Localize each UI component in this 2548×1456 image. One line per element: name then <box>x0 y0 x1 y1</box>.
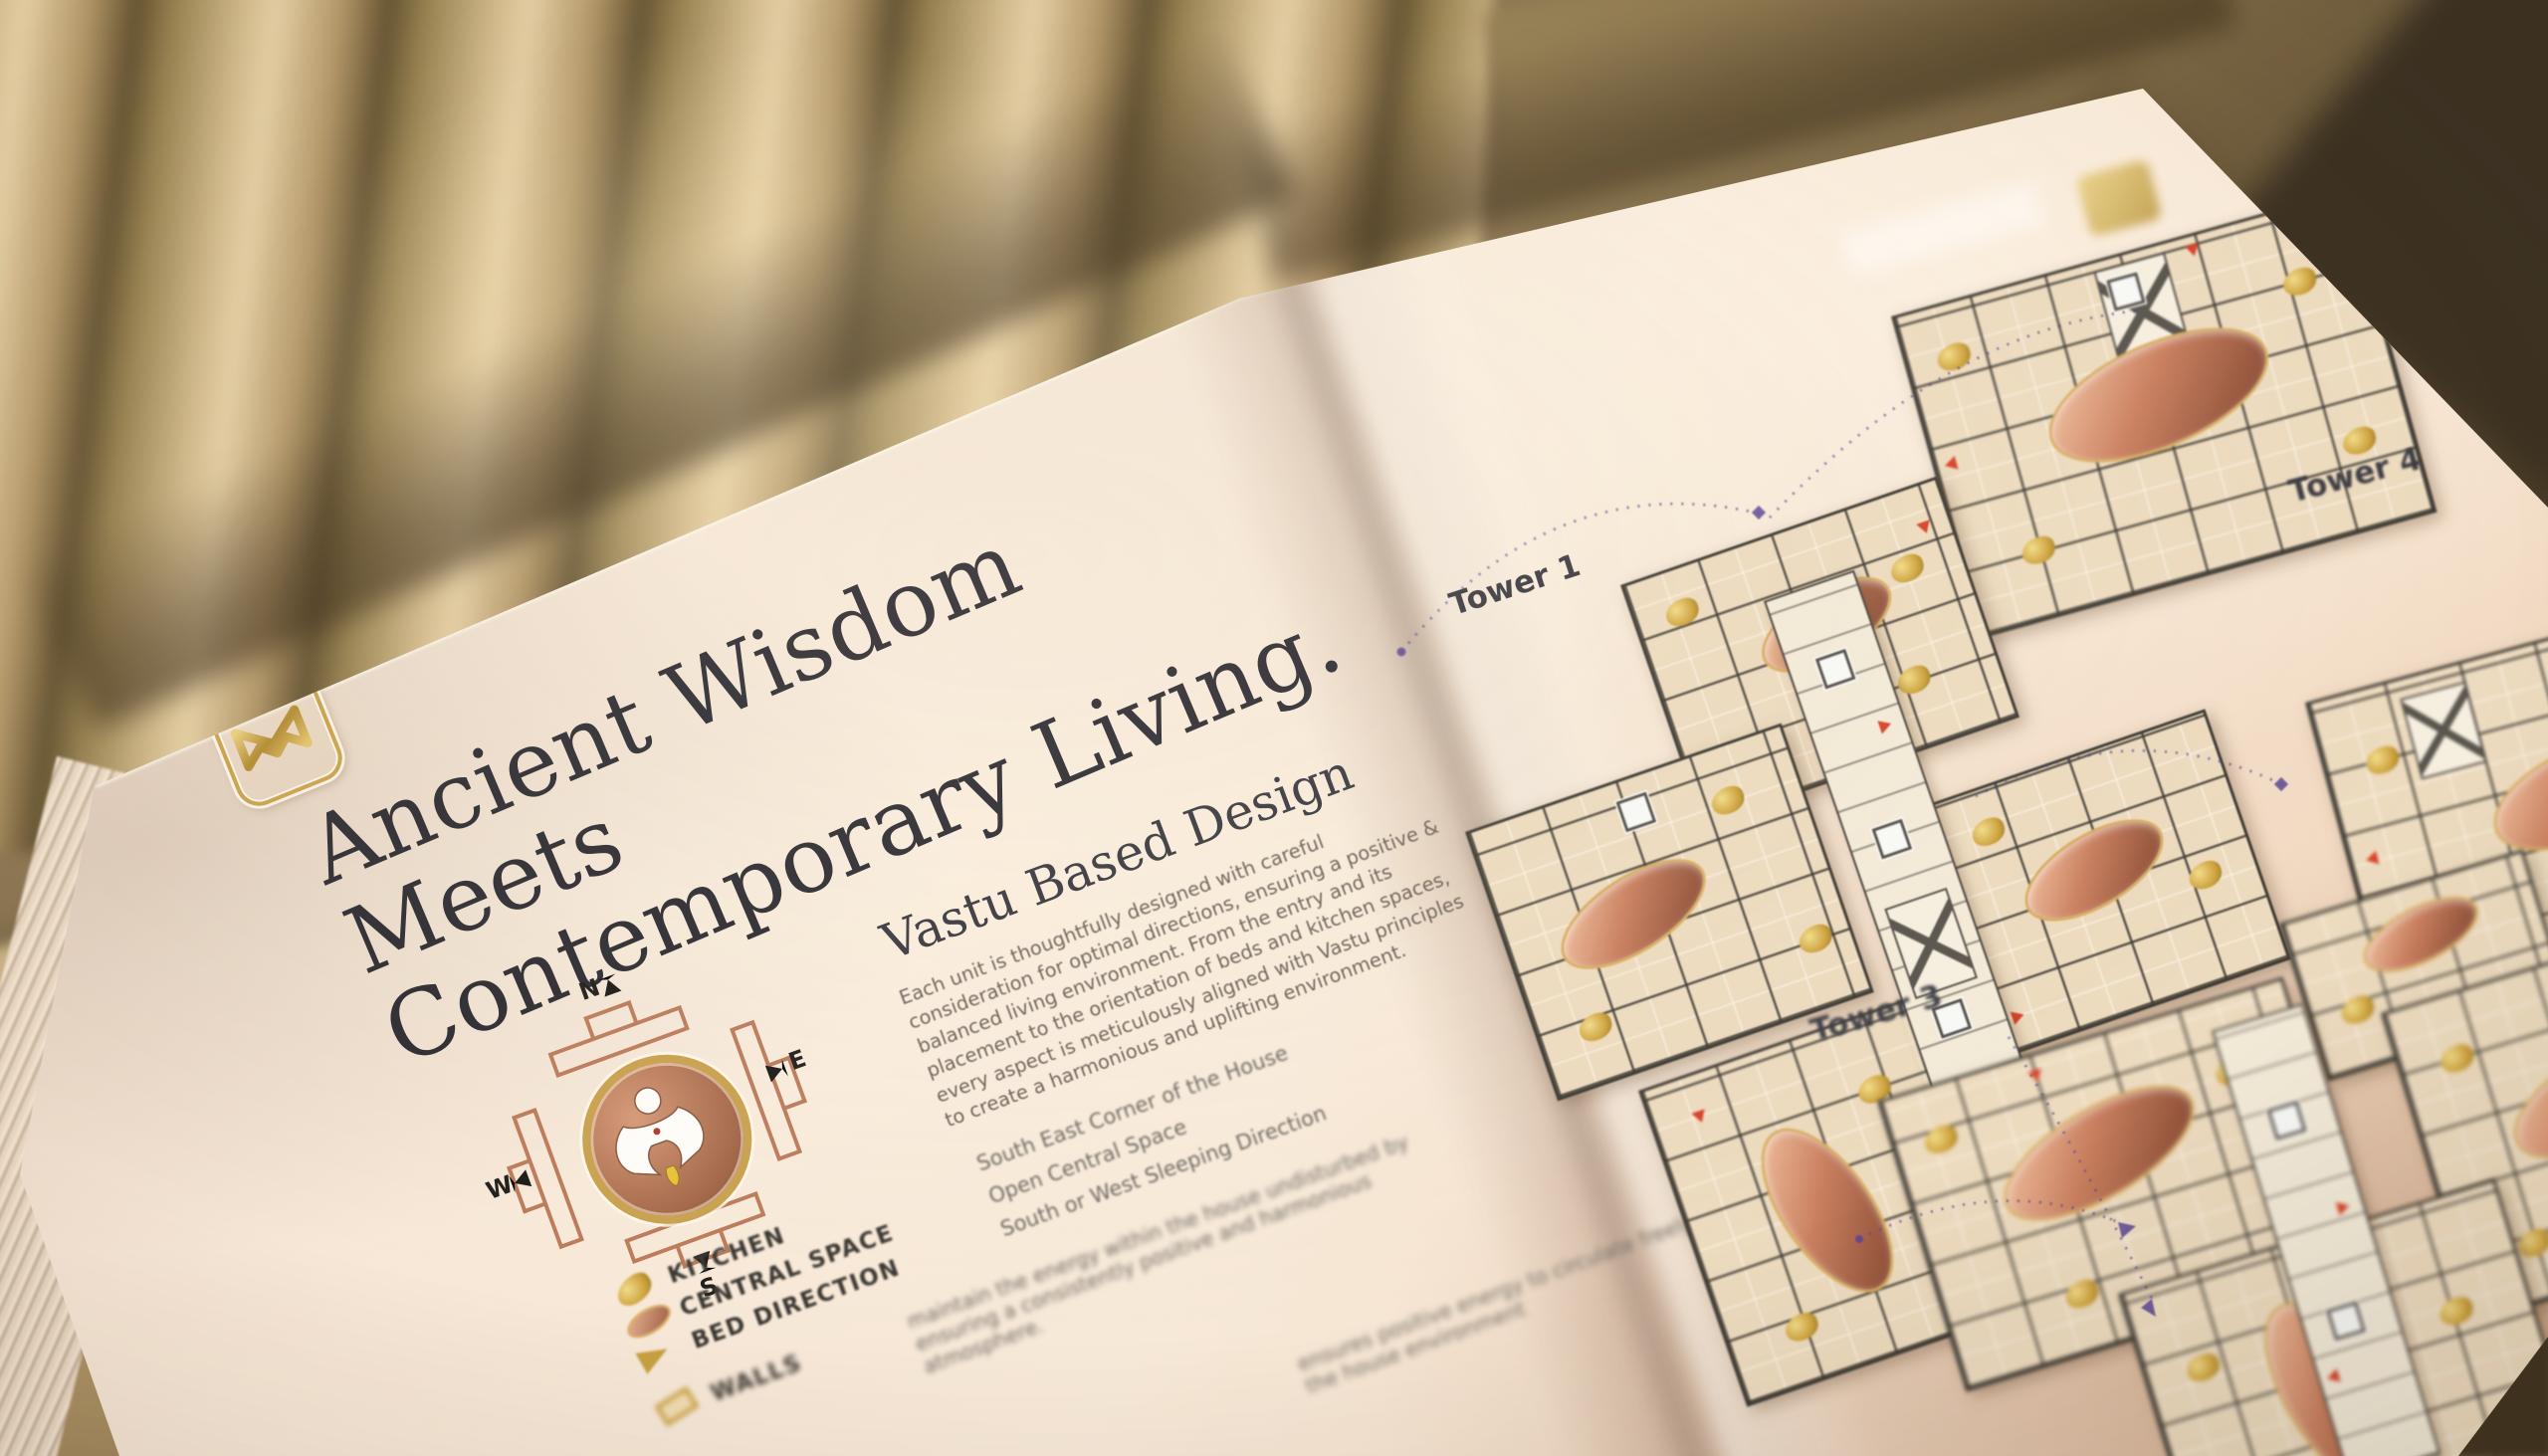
photo-scene: Ancient Wisdom Meets Contemporary Living… <box>0 0 2548 1456</box>
